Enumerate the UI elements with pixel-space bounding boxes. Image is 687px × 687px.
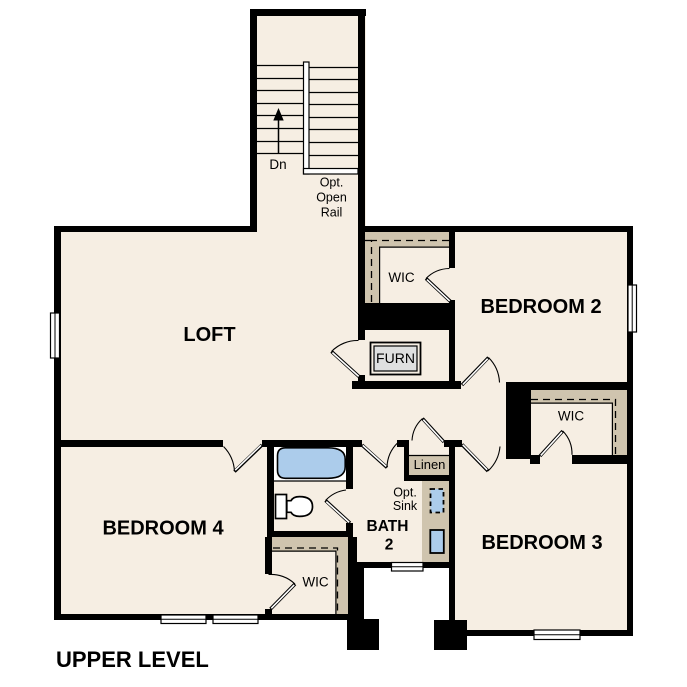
svg-text:BEDROOM 3: BEDROOM 3 — [481, 532, 602, 554]
svg-text:BEDROOM 2: BEDROOM 2 — [480, 296, 601, 318]
svg-text:WIC: WIC — [302, 575, 328, 590]
svg-text:Opt.: Opt. — [320, 176, 344, 190]
svg-text:Linen: Linen — [414, 457, 446, 472]
svg-text:FURN: FURN — [376, 350, 415, 366]
svg-text:UPPER LEVEL: UPPER LEVEL — [56, 647, 209, 672]
svg-text:Opt.: Opt. — [393, 486, 417, 500]
svg-text:Rail: Rail — [321, 206, 343, 220]
svg-text:BATH: BATH — [367, 518, 409, 535]
svg-text:Open: Open — [316, 191, 347, 205]
svg-text:2: 2 — [385, 537, 394, 554]
svg-text:WIC: WIC — [388, 270, 414, 285]
svg-text:BEDROOM 4: BEDROOM 4 — [102, 518, 224, 540]
svg-text:Sink: Sink — [393, 499, 418, 513]
svg-text:LOFT: LOFT — [183, 324, 235, 346]
svg-text:Dn: Dn — [269, 157, 286, 172]
svg-text:WIC: WIC — [558, 409, 584, 424]
